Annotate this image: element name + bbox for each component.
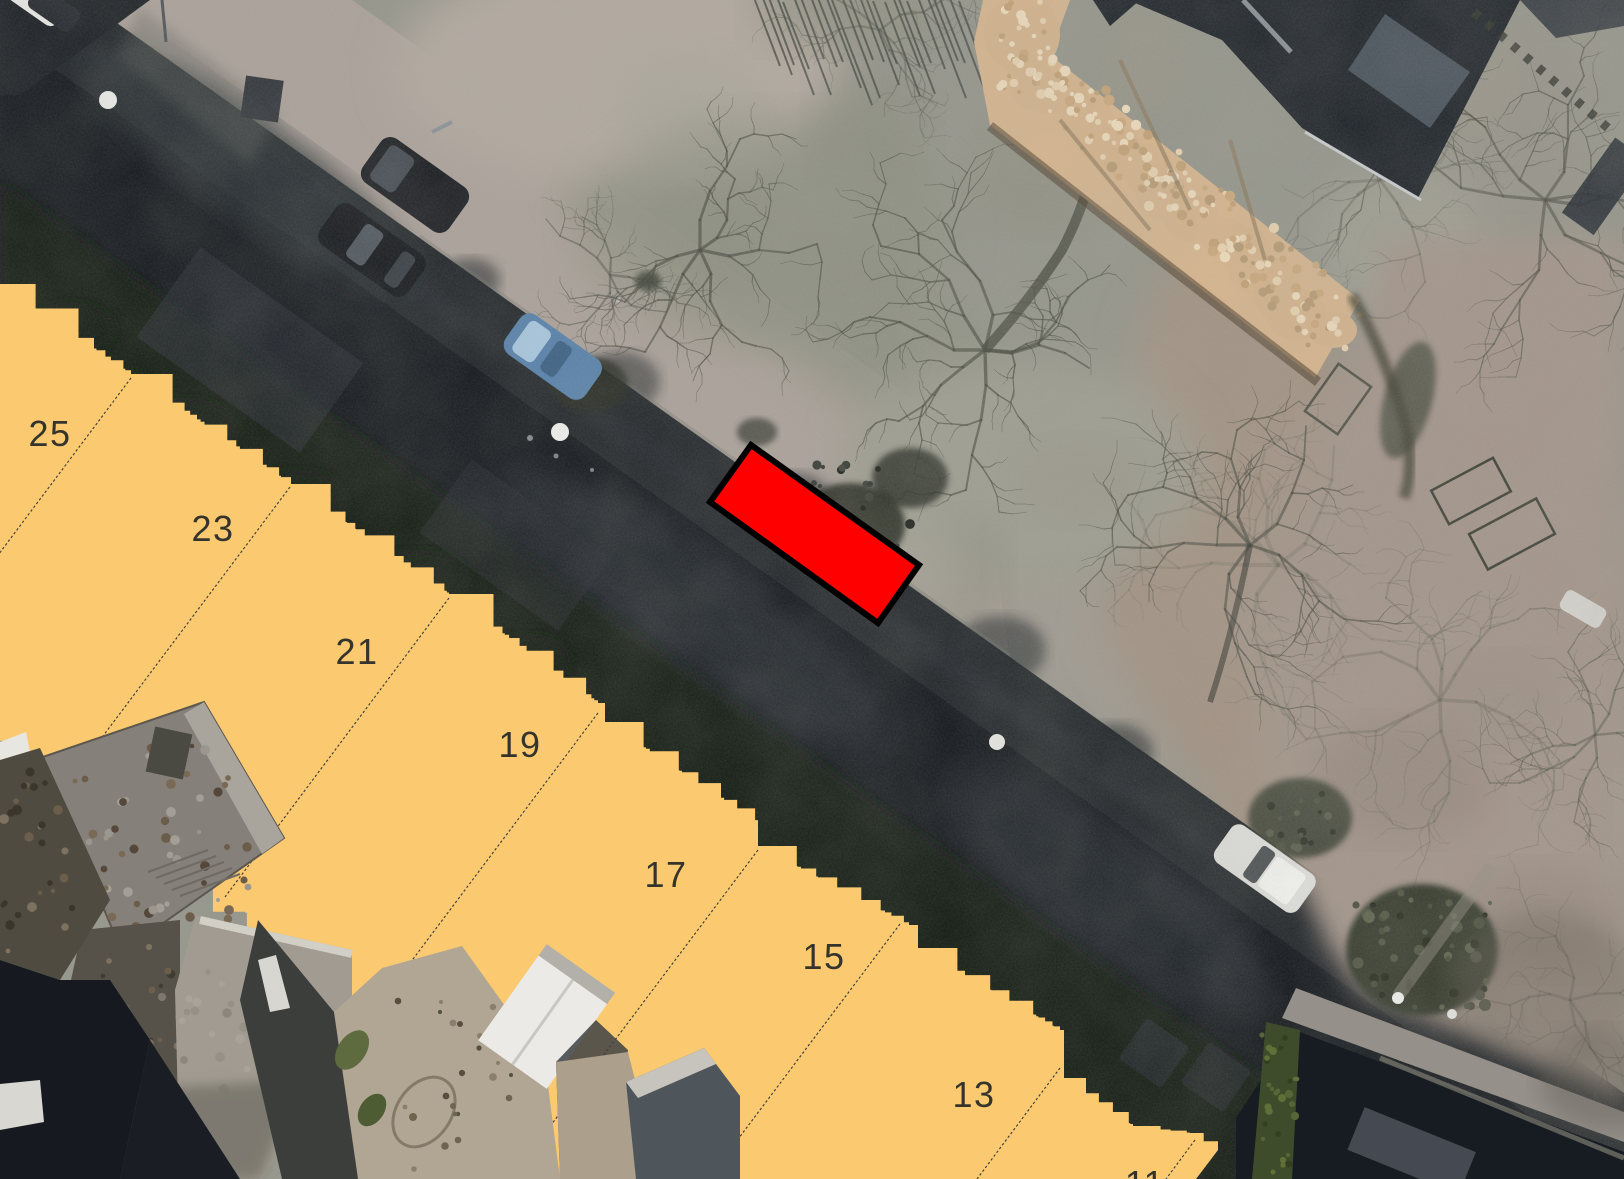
svg-text:15: 15 xyxy=(802,936,845,977)
svg-text:11: 11 xyxy=(1125,1163,1165,1179)
svg-text:25: 25 xyxy=(28,413,71,454)
svg-text:13: 13 xyxy=(952,1074,995,1115)
svg-text:17: 17 xyxy=(644,854,687,895)
svg-text:21: 21 xyxy=(335,631,378,672)
svg-text:23: 23 xyxy=(191,508,234,549)
svg-text:19: 19 xyxy=(498,724,541,765)
